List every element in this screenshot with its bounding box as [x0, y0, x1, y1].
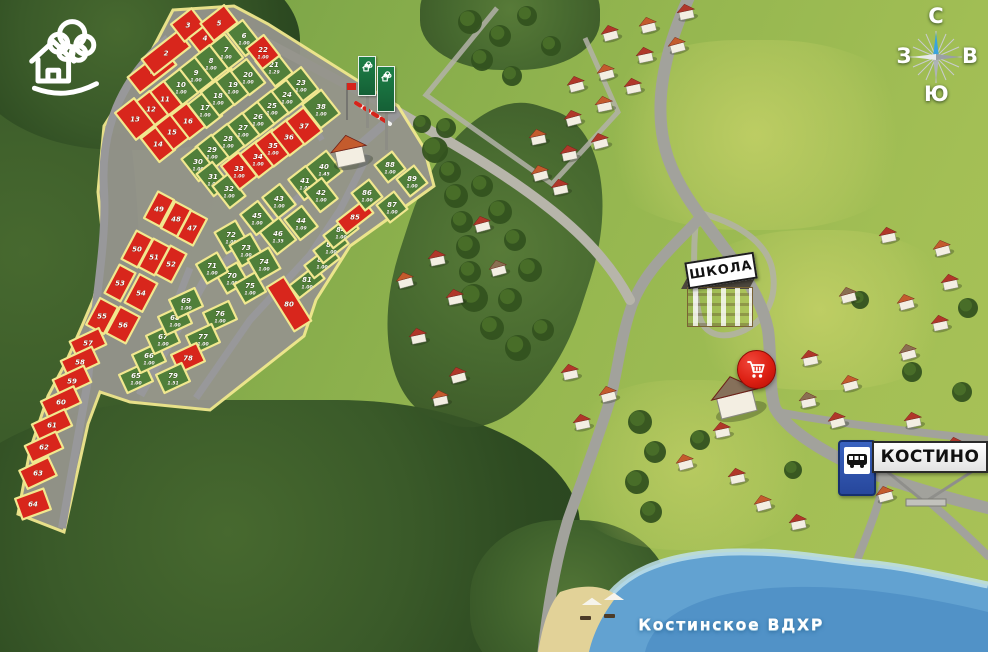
plot-area: 1.00: [212, 101, 224, 107]
plot-number: 32: [224, 185, 234, 193]
house: [931, 237, 955, 259]
shop-marker: [737, 350, 776, 389]
plot-area: 1.45: [318, 172, 329, 178]
plot-area: 1.00: [227, 90, 239, 96]
tree: [640, 501, 662, 523]
plot-area: 1.00: [223, 194, 235, 200]
plot-number: 55: [97, 313, 107, 321]
house: [674, 451, 698, 473]
plot-number: 9: [194, 69, 199, 77]
plot-number: 5: [217, 20, 222, 28]
plot-number: 61: [47, 422, 57, 430]
plot-number: 54: [136, 290, 146, 298]
tree: [505, 335, 531, 361]
plot-number: 45: [252, 212, 262, 220]
plot-number: 23: [296, 79, 306, 87]
plot-number: 44: [296, 217, 306, 225]
plot-number: 77: [198, 333, 208, 341]
tree: [517, 6, 537, 26]
tree: [625, 470, 649, 494]
plot-number: 72: [226, 231, 236, 239]
plot-number: 63: [33, 470, 43, 478]
plot-number: 40: [319, 163, 329, 171]
plot-number: 46: [273, 230, 283, 238]
house: [430, 388, 453, 409]
plot-area: 1.00: [180, 306, 192, 312]
plot-number: 10: [176, 81, 186, 89]
house: [752, 492, 776, 514]
house: [940, 272, 963, 293]
plot-area: 1.00: [267, 151, 279, 157]
tree: [518, 258, 542, 282]
tree: [958, 298, 978, 318]
plot-number: 30: [193, 158, 203, 166]
house: [560, 362, 583, 383]
banner-post: [366, 94, 369, 128]
beach-lounger: [604, 614, 615, 618]
plot-number: 74: [259, 258, 269, 266]
plot-area: 1.00: [315, 198, 327, 204]
plot-number: 56: [118, 322, 128, 330]
banner-post: [385, 108, 388, 150]
entrance-banner: [377, 66, 395, 112]
plot-area: 1.00: [190, 78, 202, 84]
compass-south-label: Ю: [924, 82, 948, 106]
plot-area: 1.00: [252, 162, 264, 168]
house: [903, 410, 926, 431]
plot-number: 27: [238, 124, 248, 132]
logo-swoosh: [34, 84, 96, 94]
reservoir-label: Костинское ВДХР: [616, 615, 846, 634]
plot-number: 51: [149, 254, 159, 262]
plot-area: 1.00: [222, 144, 234, 150]
house: [897, 341, 921, 363]
tree: [471, 49, 493, 71]
plot-number: 80: [284, 301, 294, 309]
plot-number: 89: [407, 175, 417, 183]
plot-number: 18: [213, 92, 223, 100]
plot-number: 13: [130, 116, 140, 124]
plot-number: 53: [115, 280, 125, 288]
plot-number: 75: [245, 282, 255, 290]
plot-area: 1.00: [384, 170, 396, 176]
plot-number: 22: [258, 46, 268, 54]
tree: [532, 319, 554, 341]
plot-number: 28: [223, 135, 233, 143]
plot-area: 1.00: [386, 210, 398, 216]
plot-area: 1.00: [406, 184, 418, 190]
plot-number: 76: [215, 310, 225, 318]
beach-lounger: [580, 616, 591, 620]
plot-area: 1.00: [205, 66, 217, 72]
plot-number: 48: [171, 216, 181, 224]
plot-number: 88: [385, 161, 395, 169]
plot-number: 8: [209, 57, 214, 65]
plot-area: 1.00: [273, 204, 285, 210]
plot-number: 33: [234, 165, 244, 173]
tree: [451, 211, 473, 233]
plot-number: 42: [316, 189, 326, 197]
tree: [502, 66, 522, 86]
plot-number: 17: [200, 104, 210, 112]
village-sign: КОСТИНО: [872, 441, 988, 473]
plot-area: 1.00: [157, 342, 169, 348]
house: [565, 73, 589, 95]
bus-stop-sign: [838, 440, 876, 496]
plot-number: 36: [284, 134, 294, 142]
tree: [456, 235, 480, 259]
house: [487, 257, 511, 279]
reservoir: [588, 552, 988, 652]
house: [635, 45, 658, 66]
tree: [690, 430, 710, 450]
bus-icon: [844, 447, 870, 474]
plot-number: 41: [300, 177, 310, 185]
house: [572, 412, 595, 433]
plot-number: 66: [144, 352, 154, 360]
plot-number: 87: [387, 201, 397, 209]
plot-area: 1.09: [295, 226, 306, 232]
plot-number: 16: [183, 118, 193, 126]
plot-area: 1.00: [257, 55, 269, 61]
plot-area: 1.00: [206, 271, 218, 277]
house: [394, 269, 418, 291]
plot-number: 37: [299, 123, 309, 131]
house: [637, 15, 661, 37]
house: [447, 364, 471, 386]
plot-area: 1.00: [258, 267, 270, 273]
plot-area: 1.00: [143, 361, 155, 367]
tree: [444, 184, 468, 208]
plot-number: 29: [207, 146, 217, 154]
plot-number: 31: [208, 173, 218, 181]
plot-area: 1.00: [233, 174, 245, 180]
plot-number: 24: [282, 91, 292, 99]
plot-area: 1.00: [244, 291, 256, 297]
house: [528, 127, 551, 148]
plot-number: 85: [350, 214, 360, 222]
house: [800, 348, 823, 369]
plot-number: 64: [28, 501, 38, 509]
entrance-banner: [358, 56, 376, 96]
plot-area: 1.00: [316, 265, 328, 271]
banner-logo-icon: [380, 70, 393, 83]
house: [930, 313, 953, 334]
plot-number: 25: [267, 102, 277, 110]
compass-north-label: С: [924, 4, 948, 28]
tree: [952, 382, 972, 402]
house: [788, 512, 811, 533]
plot-area: 1.51: [167, 381, 178, 387]
tree: [480, 316, 504, 340]
plot-number: 15: [167, 129, 177, 137]
plot-number: 50: [132, 246, 142, 254]
plot-number: 35: [268, 142, 278, 150]
plot-number: 12: [146, 106, 156, 114]
plot-number: 6: [242, 32, 247, 40]
plot-number: 47: [187, 225, 197, 233]
plot-number: 7: [224, 46, 229, 54]
plot-area: 1.00: [214, 319, 226, 325]
tree: [489, 25, 511, 47]
house: [727, 466, 750, 487]
compass-east-label: В: [958, 44, 982, 68]
plot-number: 49: [154, 206, 164, 214]
plot-area: 1.00: [251, 221, 263, 227]
plot-number: 62: [39, 444, 49, 452]
house: [895, 291, 919, 313]
plot-number: 69: [181, 297, 191, 305]
plot-area: 1.29: [268, 70, 279, 76]
entrance-flag: [347, 83, 356, 90]
plot-number: 59: [67, 378, 77, 386]
plot-number: 81: [302, 276, 312, 284]
tree: [436, 118, 456, 138]
school-building: ШКОЛА: [682, 260, 758, 332]
plot-number: 3: [186, 22, 191, 30]
house: [839, 372, 863, 394]
plot-area: 1.00: [175, 90, 187, 96]
tree: [439, 161, 461, 183]
developer-logo: [20, 8, 110, 100]
compass-west-label: З: [892, 44, 916, 68]
cart-icon: [746, 359, 767, 380]
house: [623, 76, 646, 97]
plot-number: 60: [56, 399, 66, 407]
plot-number: 20: [243, 71, 253, 79]
tree: [902, 362, 922, 382]
banner-logo-icon: [361, 60, 374, 73]
plot-number: 86: [362, 189, 372, 197]
plot-number: 43: [274, 195, 284, 203]
tree: [413, 115, 431, 133]
plot-number: 11: [160, 96, 170, 104]
plot-number: 34: [253, 153, 263, 161]
map-scene: 1234561.0071.0081.0091.00101.00111213141…: [0, 0, 988, 652]
plot-area: 1.00: [130, 381, 142, 387]
plot-number: 78: [183, 355, 193, 363]
tree: [488, 200, 512, 224]
plot-number: 70: [227, 272, 237, 280]
house: [878, 225, 901, 246]
tree: [504, 229, 526, 251]
house: [427, 248, 450, 269]
plot-number: 79: [168, 372, 178, 380]
school-facade: [687, 287, 753, 327]
plot-number: 4: [203, 35, 208, 43]
plot-number: 19: [228, 81, 238, 89]
plot-area: 1.00: [169, 323, 181, 329]
tree: [460, 284, 488, 312]
plot-area: 1.00: [199, 113, 211, 119]
plot-area: 1.00: [315, 112, 327, 118]
tree: [471, 175, 493, 197]
tree: [644, 441, 666, 463]
plot-number: 38: [316, 103, 326, 111]
plot-number: 14: [153, 141, 163, 149]
plot-area: 1.00: [325, 250, 337, 256]
map-canvas: 1234561.0071.0081.0091.00101.00111213141…: [0, 0, 988, 652]
tree: [422, 137, 448, 163]
house: [712, 420, 735, 441]
plot-area: 1.00: [301, 285, 313, 291]
plot-area: 1.00: [335, 235, 347, 241]
house: [408, 326, 431, 347]
plot-area: 1.00: [361, 198, 373, 204]
house: [562, 107, 586, 129]
tree: [784, 461, 802, 479]
tree: [459, 261, 481, 283]
compass-rose: [908, 29, 964, 85]
plot-number: 2: [164, 50, 169, 58]
tree: [541, 36, 561, 56]
house: [798, 390, 821, 411]
tree: [628, 410, 652, 434]
plot-number: 52: [166, 261, 176, 269]
house: [599, 22, 623, 44]
plot-area: 1.35: [272, 239, 283, 245]
compass-needle-north: [933, 32, 939, 57]
plot-number: 26: [253, 113, 263, 121]
tree: [458, 10, 482, 34]
plot-number: 71: [207, 262, 217, 270]
plot-area: 1.00: [242, 80, 254, 86]
tree: [498, 288, 522, 312]
plot-number: 73: [241, 244, 251, 252]
